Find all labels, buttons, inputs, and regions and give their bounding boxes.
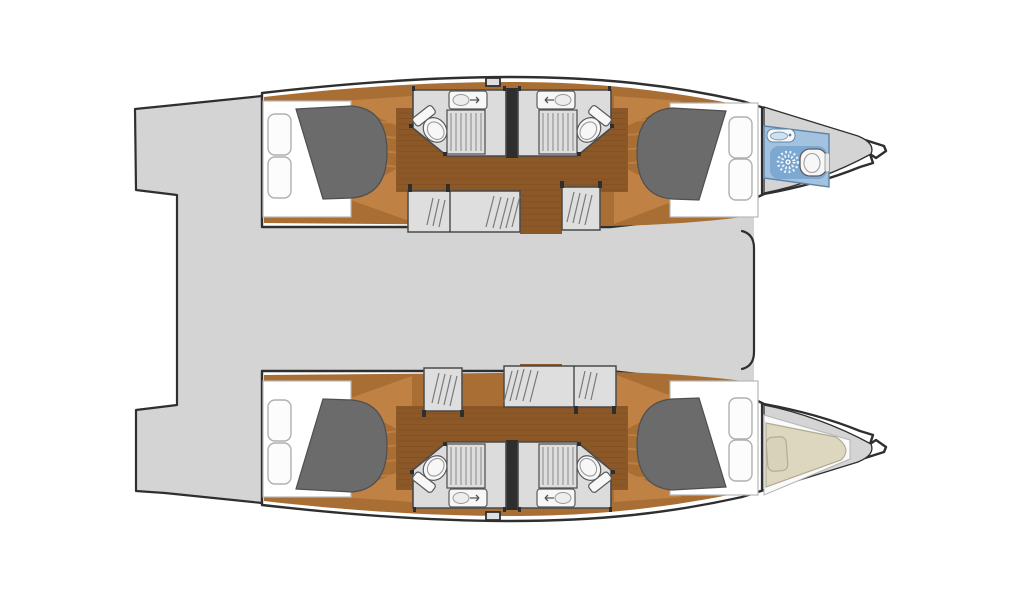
- floor-plan-page: [0, 0, 1024, 600]
- catamaran-floor-plan: [0, 0, 1024, 600]
- toilet: [800, 149, 830, 176]
- pillow: [766, 436, 788, 471]
- port-bow-head: [764, 126, 830, 187]
- sink: [767, 129, 795, 142]
